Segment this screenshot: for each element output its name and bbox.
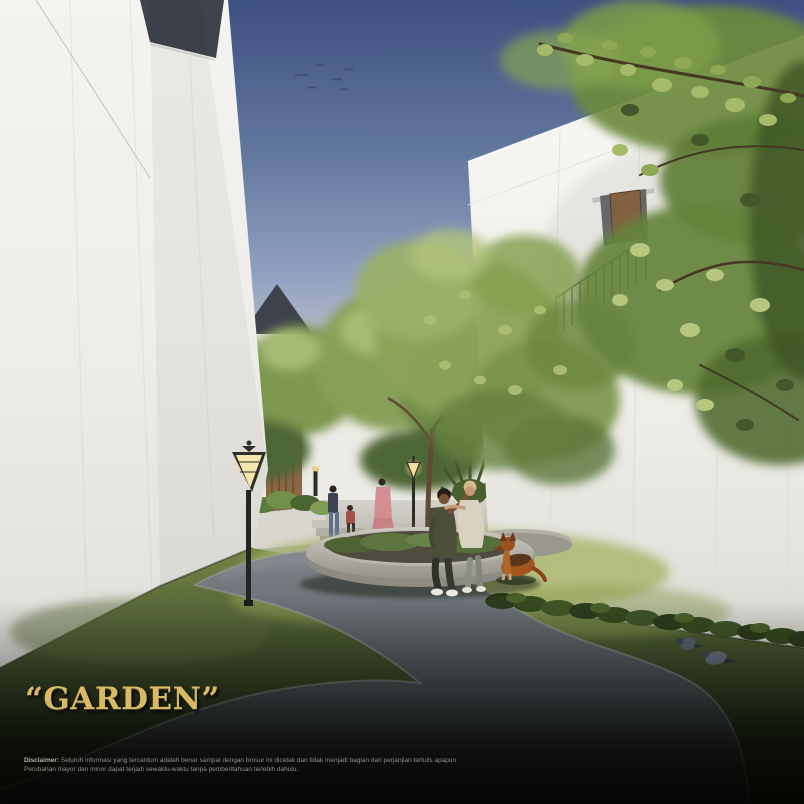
page-title: “GARDEN” [25, 681, 220, 717]
brochure-page: “GARDEN” Disclaimer: Seluruh informasi y… [0, 0, 804, 804]
disclaimer-text: Disclaimer: Seluruh informasi yang terca… [24, 756, 774, 775]
disclaimer-label: Disclaimer: [24, 757, 59, 764]
disclaimer-line-1: Disclaimer: Seluruh informasi yang terca… [24, 756, 774, 765]
disclaimer-line-2: Perubahan mayor dan minor dapat terjadi … [24, 765, 774, 774]
